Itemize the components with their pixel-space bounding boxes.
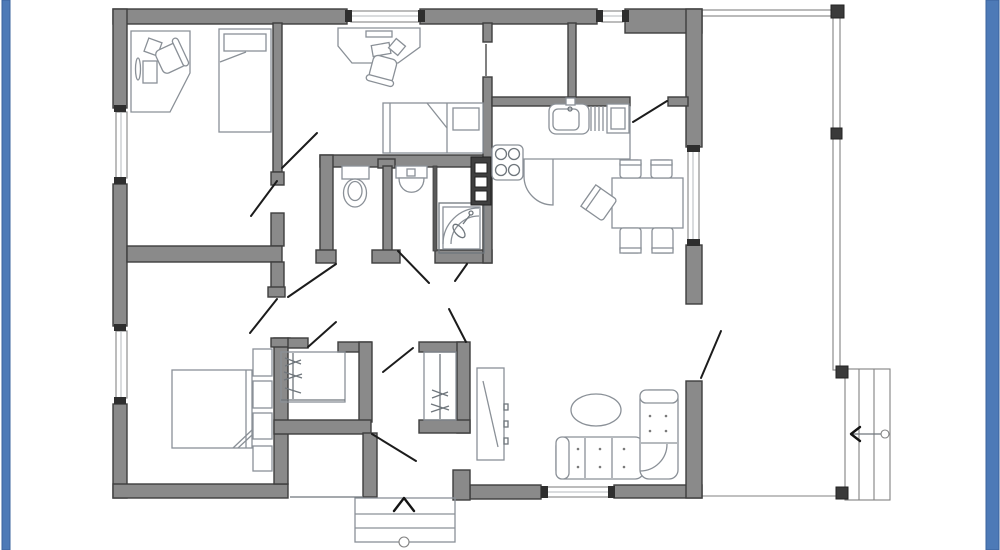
window-nub [114, 177, 126, 184]
kitchen-drainboard [591, 106, 603, 131]
bedside-unit [253, 349, 272, 376]
window-nub [114, 324, 126, 331]
wall-bed2-right-cap [271, 338, 290, 347]
wall-bed2-stub-foot [268, 287, 285, 297]
wall-closetA-top [288, 338, 308, 348]
shower-sprayer [451, 222, 467, 239]
cabinet-knob [504, 404, 508, 410]
wall-doorjamb-right [453, 470, 470, 500]
door-closetA [308, 322, 336, 347]
window-nub [608, 486, 615, 498]
sofa-button [577, 448, 580, 451]
entry-steps [355, 498, 455, 542]
wall-closetB-bottom [419, 420, 470, 433]
deck-rail-top [702, 10, 834, 16]
deck-post-ne [831, 5, 844, 18]
sofa-armrest-left [556, 437, 569, 479]
wall-bath-divider-foot [372, 250, 400, 263]
wall-doorjamb-left [363, 433, 377, 497]
study-desk-tray [366, 31, 392, 37]
boiler-panel [475, 191, 487, 201]
sofa-armrest-top [640, 390, 678, 403]
wall-top-mid [420, 9, 597, 24]
coffee-table [571, 394, 621, 426]
deck-rail-right [833, 16, 840, 370]
dining-chair-back [620, 160, 641, 165]
wall-bath-right-stub [483, 23, 492, 42]
sofa-button [599, 448, 602, 451]
wall-top-left [113, 9, 347, 24]
floor-plan-drawing [0, 0, 1000, 550]
door-room1 [251, 181, 277, 216]
sofa-button [665, 430, 668, 433]
deck-post-stairs-top [836, 366, 848, 378]
window-nub [596, 10, 603, 22]
wall-shower-partition [433, 166, 437, 251]
office-desk-monitor [143, 61, 157, 83]
wall-entry-top [274, 420, 371, 434]
wall-room1-right-foot [271, 172, 284, 185]
kitchen-faucet [566, 98, 575, 105]
boiler-panel [475, 163, 487, 173]
window-nub [345, 10, 352, 22]
sofa-button [577, 466, 580, 469]
wall-left-a [113, 9, 127, 108]
door-shower [455, 264, 467, 281]
sofa-button [649, 415, 652, 418]
wall-bed2-stub [271, 262, 284, 289]
floor-plan-page [0, 0, 1000, 550]
wall-bath-divider [383, 166, 392, 251]
frame-bar-right [986, 0, 999, 550]
frame-bar-left [2, 0, 10, 550]
toilet-tank [342, 166, 369, 179]
deck-post-stairs-bottom [836, 487, 848, 499]
door-front [372, 434, 416, 461]
stairs-arrow-circle [881, 430, 889, 438]
entry-step-knob [399, 537, 409, 547]
wall-bath-left [320, 155, 333, 252]
bedside-unit [253, 446, 272, 471]
window-nub [622, 10, 629, 22]
wall-room1-right [273, 23, 282, 172]
wall-left-b [113, 184, 127, 326]
sofa-button [623, 466, 626, 469]
bed2-pillow [453, 108, 479, 130]
wall-closetA-right [359, 342, 372, 422]
sofa-button [649, 430, 652, 433]
dining-chair-back [620, 248, 641, 253]
door-bedroom [250, 299, 277, 333]
sofa-button [623, 448, 626, 451]
double-bed [172, 370, 252, 448]
bedside-unit [253, 381, 272, 408]
dining-table [612, 178, 683, 228]
wall-room1-stub [271, 213, 284, 246]
entry-step-lines [355, 514, 455, 528]
wall-right-c [686, 381, 702, 498]
sofa-button [665, 415, 668, 418]
door-deck [701, 331, 721, 378]
window-nub [418, 10, 425, 22]
door-kitchen [633, 101, 667, 122]
door-room2 [282, 133, 317, 168]
wall-kitchen-top-stub [668, 97, 688, 106]
wall-bath-top [320, 155, 492, 167]
bedside-unit [253, 413, 272, 439]
bed1-pillow [224, 34, 266, 51]
study-desk-monitor [371, 43, 391, 57]
sofa-button [599, 466, 602, 469]
door-corridor [449, 309, 466, 342]
door-closetB [383, 348, 413, 372]
wall-vestibule-divider [568, 23, 576, 97]
wall-bottom-left [113, 484, 288, 498]
door-toilet [288, 264, 336, 297]
wall-right-b [686, 245, 702, 304]
office-desk-tray [136, 58, 141, 80]
toilet-bowl [344, 179, 367, 207]
window-nub [687, 145, 700, 152]
dining-chair-back [651, 160, 672, 165]
shower-sprayer-head [469, 211, 473, 215]
cabinet-knob [504, 438, 508, 444]
window-nub [114, 105, 126, 112]
door-bathsink [398, 251, 429, 283]
window-nub [114, 397, 126, 404]
wall-bottom-mid [470, 485, 541, 499]
deck-post-east [831, 128, 842, 139]
bath-sink-bowl [399, 178, 424, 192]
window-nub [541, 486, 548, 498]
wall-bath-left-foot [316, 250, 336, 263]
wall-right-a [686, 9, 702, 147]
cabinet-knob [504, 421, 508, 427]
window-nub [687, 239, 700, 246]
wall-div-horizontal [127, 246, 282, 262]
dining-chair-back [652, 248, 673, 253]
bath-sink-faucet [407, 169, 415, 176]
boiler-panel [475, 177, 487, 187]
entry-arrow [394, 498, 414, 511]
